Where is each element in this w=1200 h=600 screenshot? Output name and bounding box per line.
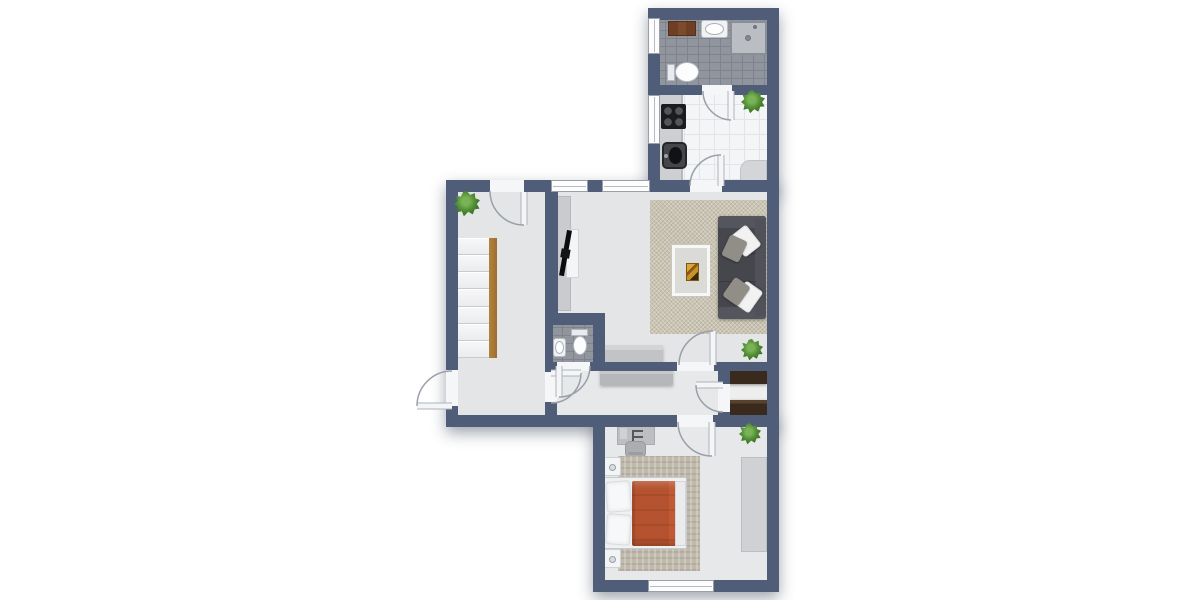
bathroom-toilet-tank xyxy=(667,64,675,81)
wall-wc-left xyxy=(545,325,553,362)
gap-bedroom-door xyxy=(677,415,713,427)
coffee-table-art xyxy=(686,263,699,281)
bed-duvet xyxy=(632,481,678,546)
stair-stringer xyxy=(489,238,497,358)
stair-step xyxy=(458,324,489,341)
stair-step xyxy=(458,272,489,289)
stair-step xyxy=(458,289,489,306)
stair-step xyxy=(458,307,489,324)
floor-plan xyxy=(0,0,1200,600)
kitchen-corner-counter xyxy=(740,160,767,182)
gap-bathroom-door xyxy=(702,85,732,95)
wc-toilet-tank xyxy=(571,329,588,336)
wall-stair-living xyxy=(545,186,558,313)
shower-drain xyxy=(745,35,751,41)
gap-living-door xyxy=(677,362,714,371)
gap-stair-hall-door xyxy=(545,372,557,402)
bed-pillow-2 xyxy=(605,513,632,546)
wc-toilet-bowl xyxy=(573,336,587,355)
gap-kitchen-door xyxy=(690,180,722,192)
bathroom-toilet-bowl xyxy=(675,62,699,82)
stair-step xyxy=(458,238,489,255)
wardrobe xyxy=(741,457,767,552)
bed-pillow-1 xyxy=(605,480,632,513)
living-window-1 xyxy=(551,180,588,192)
gap-closet-door xyxy=(718,384,730,412)
gap-stair-top-door xyxy=(490,180,524,192)
bathroom-cabinet xyxy=(668,21,696,36)
kitchen-window xyxy=(648,95,660,144)
wall-right xyxy=(767,8,779,592)
staircase xyxy=(458,238,497,358)
bathroom-window xyxy=(648,18,660,54)
stove xyxy=(661,104,686,129)
wall-top xyxy=(648,8,779,20)
wall-bottom-left xyxy=(446,415,605,427)
bed-sheet-fold xyxy=(675,481,686,546)
wall-bedroom-left xyxy=(593,415,605,592)
living-sideboard xyxy=(598,345,663,362)
bedroom-window xyxy=(648,580,714,592)
stair-step xyxy=(458,255,489,272)
closet-cabinet-2 xyxy=(727,400,767,416)
wc-sink-basin xyxy=(555,341,564,354)
gap-entrance-door xyxy=(446,370,458,406)
kitchen-sink xyxy=(662,142,687,169)
living-window-2 xyxy=(602,180,650,192)
stair-step xyxy=(458,341,489,358)
bathroom-sink-basin xyxy=(705,23,724,35)
gap-wc-door xyxy=(557,362,590,371)
